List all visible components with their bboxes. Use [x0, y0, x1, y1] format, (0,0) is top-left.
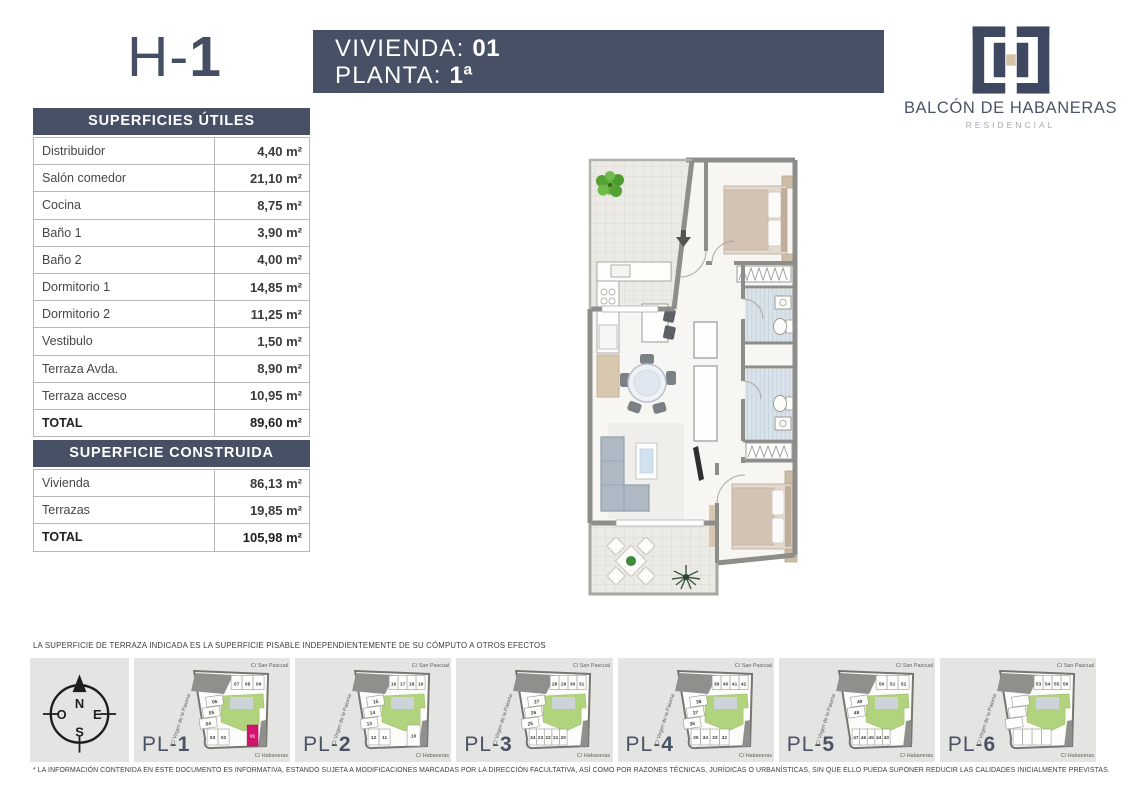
- svg-text:33: 33: [712, 735, 718, 741]
- surface-value: 11,25 m²: [215, 301, 310, 328]
- svg-text:28: 28: [552, 682, 558, 688]
- surface-value: 21,10 m²: [215, 165, 310, 192]
- wardrobe-2: [746, 443, 792, 459]
- surface-value: 3,90 m²: [215, 219, 310, 246]
- svg-text:17: 17: [400, 682, 406, 688]
- site-plan-card-3: C/ San PascualC/ HabanerasC/ Virgen de l…: [456, 658, 612, 762]
- surface-label: Terraza acceso: [34, 382, 215, 409]
- svg-text:09: 09: [256, 682, 262, 688]
- svg-text:C/ Habaneras: C/ Habaneras: [577, 753, 611, 759]
- svg-text:18: 18: [409, 682, 415, 688]
- compass-north: N: [75, 696, 84, 711]
- svg-text:41: 41: [731, 682, 737, 688]
- surface-label: Dormitorio 2: [34, 301, 215, 328]
- svg-text:56: 56: [1063, 682, 1069, 688]
- svg-text:C/ Habaneras: C/ Habaneras: [416, 753, 450, 759]
- svg-text:C/ Habaneras: C/ Habaneras: [900, 753, 934, 759]
- svg-text:C/ Habaneras: C/ Habaneras: [1061, 753, 1095, 759]
- svg-text:C/ San Pascual: C/ San Pascual: [573, 663, 610, 669]
- useful-table-title: SUPERFICIES ÚTILES: [33, 108, 310, 135]
- svg-text:53: 53: [1036, 682, 1042, 688]
- surface-row: Terraza Avda.8,90 m²: [34, 355, 310, 382]
- compass: N O E S: [30, 658, 129, 762]
- compass-icon: N O E S: [30, 658, 129, 762]
- bed-2: [732, 471, 797, 562]
- built-surface-table: SUPERFICIE CONSTRUIDA Vivienda86,13 m²Te…: [33, 440, 310, 552]
- svg-text:C/ Habaneras: C/ Habaneras: [738, 753, 772, 759]
- vivienda-label: VIVIENDA:: [335, 35, 465, 62]
- built-table-title: SUPERFICIE CONSTRUIDA: [33, 440, 310, 467]
- floor-plan: [586, 157, 812, 599]
- compass-south: S: [75, 725, 84, 740]
- wardrobe-1: [737, 266, 791, 282]
- built-table-body: Vivienda86,13 m²Terrazas19,85 m²TOTAL105…: [34, 470, 310, 552]
- svg-text:11: 11: [382, 735, 387, 741]
- svg-text:40: 40: [722, 682, 728, 688]
- surface-value: 10,95 m²: [215, 382, 310, 409]
- site-plan-label-2: PL-2: [303, 733, 351, 757]
- svg-text:35: 35: [693, 735, 699, 741]
- surface-row: Terraza acceso10,95 m²: [34, 382, 310, 409]
- svg-text:C/ San Pascual: C/ San Pascual: [412, 663, 449, 669]
- vivienda-value: 01: [472, 35, 500, 62]
- surface-label: Baño 1: [34, 219, 215, 246]
- svg-text:23: 23: [538, 735, 544, 741]
- surface-total-row: TOTAL89,60 m²: [34, 409, 310, 436]
- surface-label: Salón comedor: [34, 165, 215, 192]
- planta-value: 1ª: [450, 62, 473, 89]
- unit-banner: VIVIENDA: 01 PLANTA: 1ª: [313, 30, 884, 93]
- svg-text:42: 42: [740, 682, 746, 688]
- surface-total-row: TOTAL105,98 m²: [34, 524, 310, 551]
- unit-code-number: 1: [189, 25, 222, 89]
- brand-subtitle: RESIDENCIAL: [903, 120, 1118, 130]
- surface-row: Salón comedor21,10 m²: [34, 165, 310, 192]
- useful-surfaces-table: SUPERFICIES ÚTILES Distribuidor4,40 m²Sa…: [33, 108, 310, 437]
- svg-text:19: 19: [418, 682, 424, 688]
- surface-row: Distribuidor4,40 m²: [34, 138, 310, 165]
- coffee-table: [636, 443, 657, 479]
- svg-text:10: 10: [411, 734, 417, 740]
- svg-text:34: 34: [702, 735, 708, 741]
- surface-label: Baño 2: [34, 246, 215, 273]
- surface-row: Dormitorio 211,25 m²: [34, 301, 310, 328]
- compass-east: E: [93, 707, 102, 722]
- surface-value: 14,85 m²: [215, 273, 310, 300]
- svg-text:08: 08: [245, 682, 251, 688]
- site-plan-label-6: PL-6: [948, 733, 996, 757]
- svg-text:C/ Habaneras: C/ Habaneras: [255, 753, 289, 759]
- svg-text:52: 52: [901, 682, 907, 688]
- svg-text:21: 21: [553, 735, 559, 741]
- svg-text:07: 07: [234, 682, 240, 688]
- surface-label: Distribuidor: [34, 138, 215, 165]
- surface-row: Terrazas19,85 m²: [34, 497, 310, 524]
- useful-table-body: Distribuidor4,40 m²Salón comedor21,10 m²…: [34, 138, 310, 437]
- total-label: TOTAL: [34, 524, 215, 551]
- banner-planta: PLANTA: 1ª: [335, 62, 884, 89]
- total-value: 89,60 m²: [215, 409, 310, 436]
- svg-text:02: 02: [221, 735, 227, 741]
- brand-name: BALCÓN DE HABANERAS: [903, 99, 1118, 118]
- site-plan-card-4: C/ San PascualC/ HabanerasC/ Virgen de l…: [618, 658, 774, 762]
- surface-value: 4,00 m²: [215, 246, 310, 273]
- brand-mark-icon: [965, 26, 1057, 94]
- svg-text:45: 45: [868, 735, 874, 741]
- bed-1: [724, 176, 794, 266]
- svg-text:31: 31: [579, 682, 585, 688]
- svg-text:47: 47: [853, 735, 859, 741]
- surface-label: Terrazas: [34, 497, 215, 524]
- surface-label: Cocina: [34, 192, 215, 219]
- svg-text:C/ San Pascual: C/ San Pascual: [734, 663, 771, 669]
- svg-text:44: 44: [876, 735, 882, 741]
- svg-text:39: 39: [713, 682, 719, 688]
- planta-label: PLANTA:: [335, 62, 442, 89]
- surface-value: 1,50 m²: [215, 328, 310, 355]
- surface-value: 8,90 m²: [215, 355, 310, 382]
- surface-label: Terraza Avda.: [34, 355, 215, 382]
- site-plan-label-5: PL-5: [787, 733, 835, 757]
- site-plan-card-5: C/ San PascualC/ HabanerasC/ Virgen de l…: [779, 658, 935, 762]
- svg-text:C/ San Pascual: C/ San Pascual: [251, 663, 288, 669]
- total-label: TOTAL: [34, 409, 215, 436]
- surface-label: Vestibulo: [34, 328, 215, 355]
- svg-text:01: 01: [250, 734, 255, 739]
- svg-text:C/ San Pascual: C/ San Pascual: [896, 663, 933, 669]
- surface-row: Baño 24,00 m²: [34, 246, 310, 273]
- unit-code: H-1: [92, 24, 257, 90]
- svg-text:20: 20: [561, 735, 567, 741]
- floorplan-sheet: H-1 VIVIENDA: 01 PLANTA: 1ª BALCÓN DE HA…: [0, 0, 1129, 800]
- site-plan-label-3: PL-3: [464, 733, 512, 757]
- terrace-note: LA SUPERFICIE DE TERRAZA INDICADA ES LA …: [33, 641, 546, 650]
- banner-vivienda: VIVIENDA: 01: [335, 35, 884, 62]
- surface-value: 19,85 m²: [215, 497, 310, 524]
- svg-text:16: 16: [391, 682, 397, 688]
- svg-text:43: 43: [883, 735, 889, 741]
- surface-value: 86,13 m²: [215, 470, 310, 497]
- site-plan-label-1: PL-1: [142, 733, 190, 757]
- surface-row: Vestibulo1,50 m²: [34, 328, 310, 355]
- svg-text:51: 51: [890, 682, 896, 688]
- surface-row: Baño 13,90 m²: [34, 219, 310, 246]
- site-plan-card-1: C/ San PascualC/ HabanerasC/ Virgen de l…: [134, 658, 290, 762]
- disclaimer: * LA INFORMACIÓN CONTENIDA EN ESTE DOCUM…: [33, 767, 1111, 774]
- surface-label: Dormitorio 1: [34, 273, 215, 300]
- surface-row: Dormitorio 114,85 m²: [34, 273, 310, 300]
- total-value: 105,98 m²: [215, 524, 310, 551]
- svg-text:24: 24: [531, 735, 537, 741]
- bathroom-2: [745, 369, 793, 439]
- surface-label: Vivienda: [34, 470, 215, 497]
- svg-text:46: 46: [861, 735, 867, 741]
- svg-text:54: 54: [1045, 682, 1051, 688]
- surface-row: Vivienda86,13 m²: [34, 470, 310, 497]
- surface-row: Cocina8,75 m²: [34, 192, 310, 219]
- compass-west: O: [57, 707, 67, 722]
- surface-value: 8,75 m²: [215, 192, 310, 219]
- svg-text:29: 29: [561, 682, 567, 688]
- site-plan-card-2: C/ San PascualC/ HabanerasC/ Virgen de l…: [295, 658, 451, 762]
- site-plan-label-4: PL-4: [626, 733, 674, 757]
- terrace-glass-door: [616, 520, 704, 526]
- bathroom-1: [745, 289, 793, 343]
- surface-value: 4,40 m²: [215, 138, 310, 165]
- kitchen-window: [602, 306, 658, 312]
- avenue-terrace: [590, 523, 717, 594]
- svg-text:C/ San Pascual: C/ San Pascual: [1057, 663, 1094, 669]
- svg-text:03: 03: [210, 735, 216, 741]
- svg-text:12: 12: [371, 735, 377, 741]
- unit-code-prefix: H-: [127, 25, 189, 89]
- svg-text:32: 32: [721, 735, 727, 741]
- brand-logo: BALCÓN DE HABANERAS RESIDENCIAL: [903, 26, 1118, 130]
- svg-text:50: 50: [879, 682, 885, 688]
- svg-text:30: 30: [570, 682, 576, 688]
- site-plan-card-6: C/ San PascualC/ HabanerasC/ Virgen de l…: [940, 658, 1096, 762]
- svg-text:55: 55: [1054, 682, 1060, 688]
- site-plan-strip: N O E S C/ San PascualC/ HabanerasC/ Vir…: [30, 658, 1096, 762]
- svg-text:22: 22: [546, 735, 552, 741]
